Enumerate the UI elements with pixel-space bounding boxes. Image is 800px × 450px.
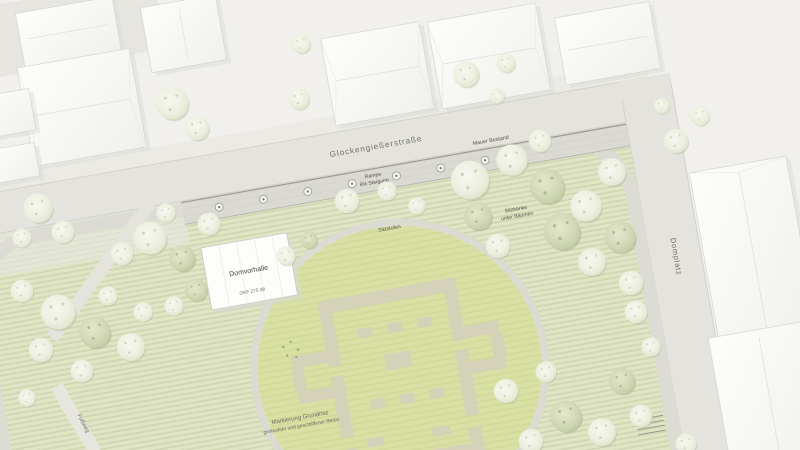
site-plan: Domvorhalle OKF 275.38 Glockengießerstra… bbox=[0, 0, 800, 450]
building-top-small bbox=[140, 0, 231, 77]
building-top-mid-a bbox=[320, 21, 438, 130]
site-plan-canvas: Domvorhalle OKF 275.38 Glockengießerstra… bbox=[0, 0, 800, 450]
